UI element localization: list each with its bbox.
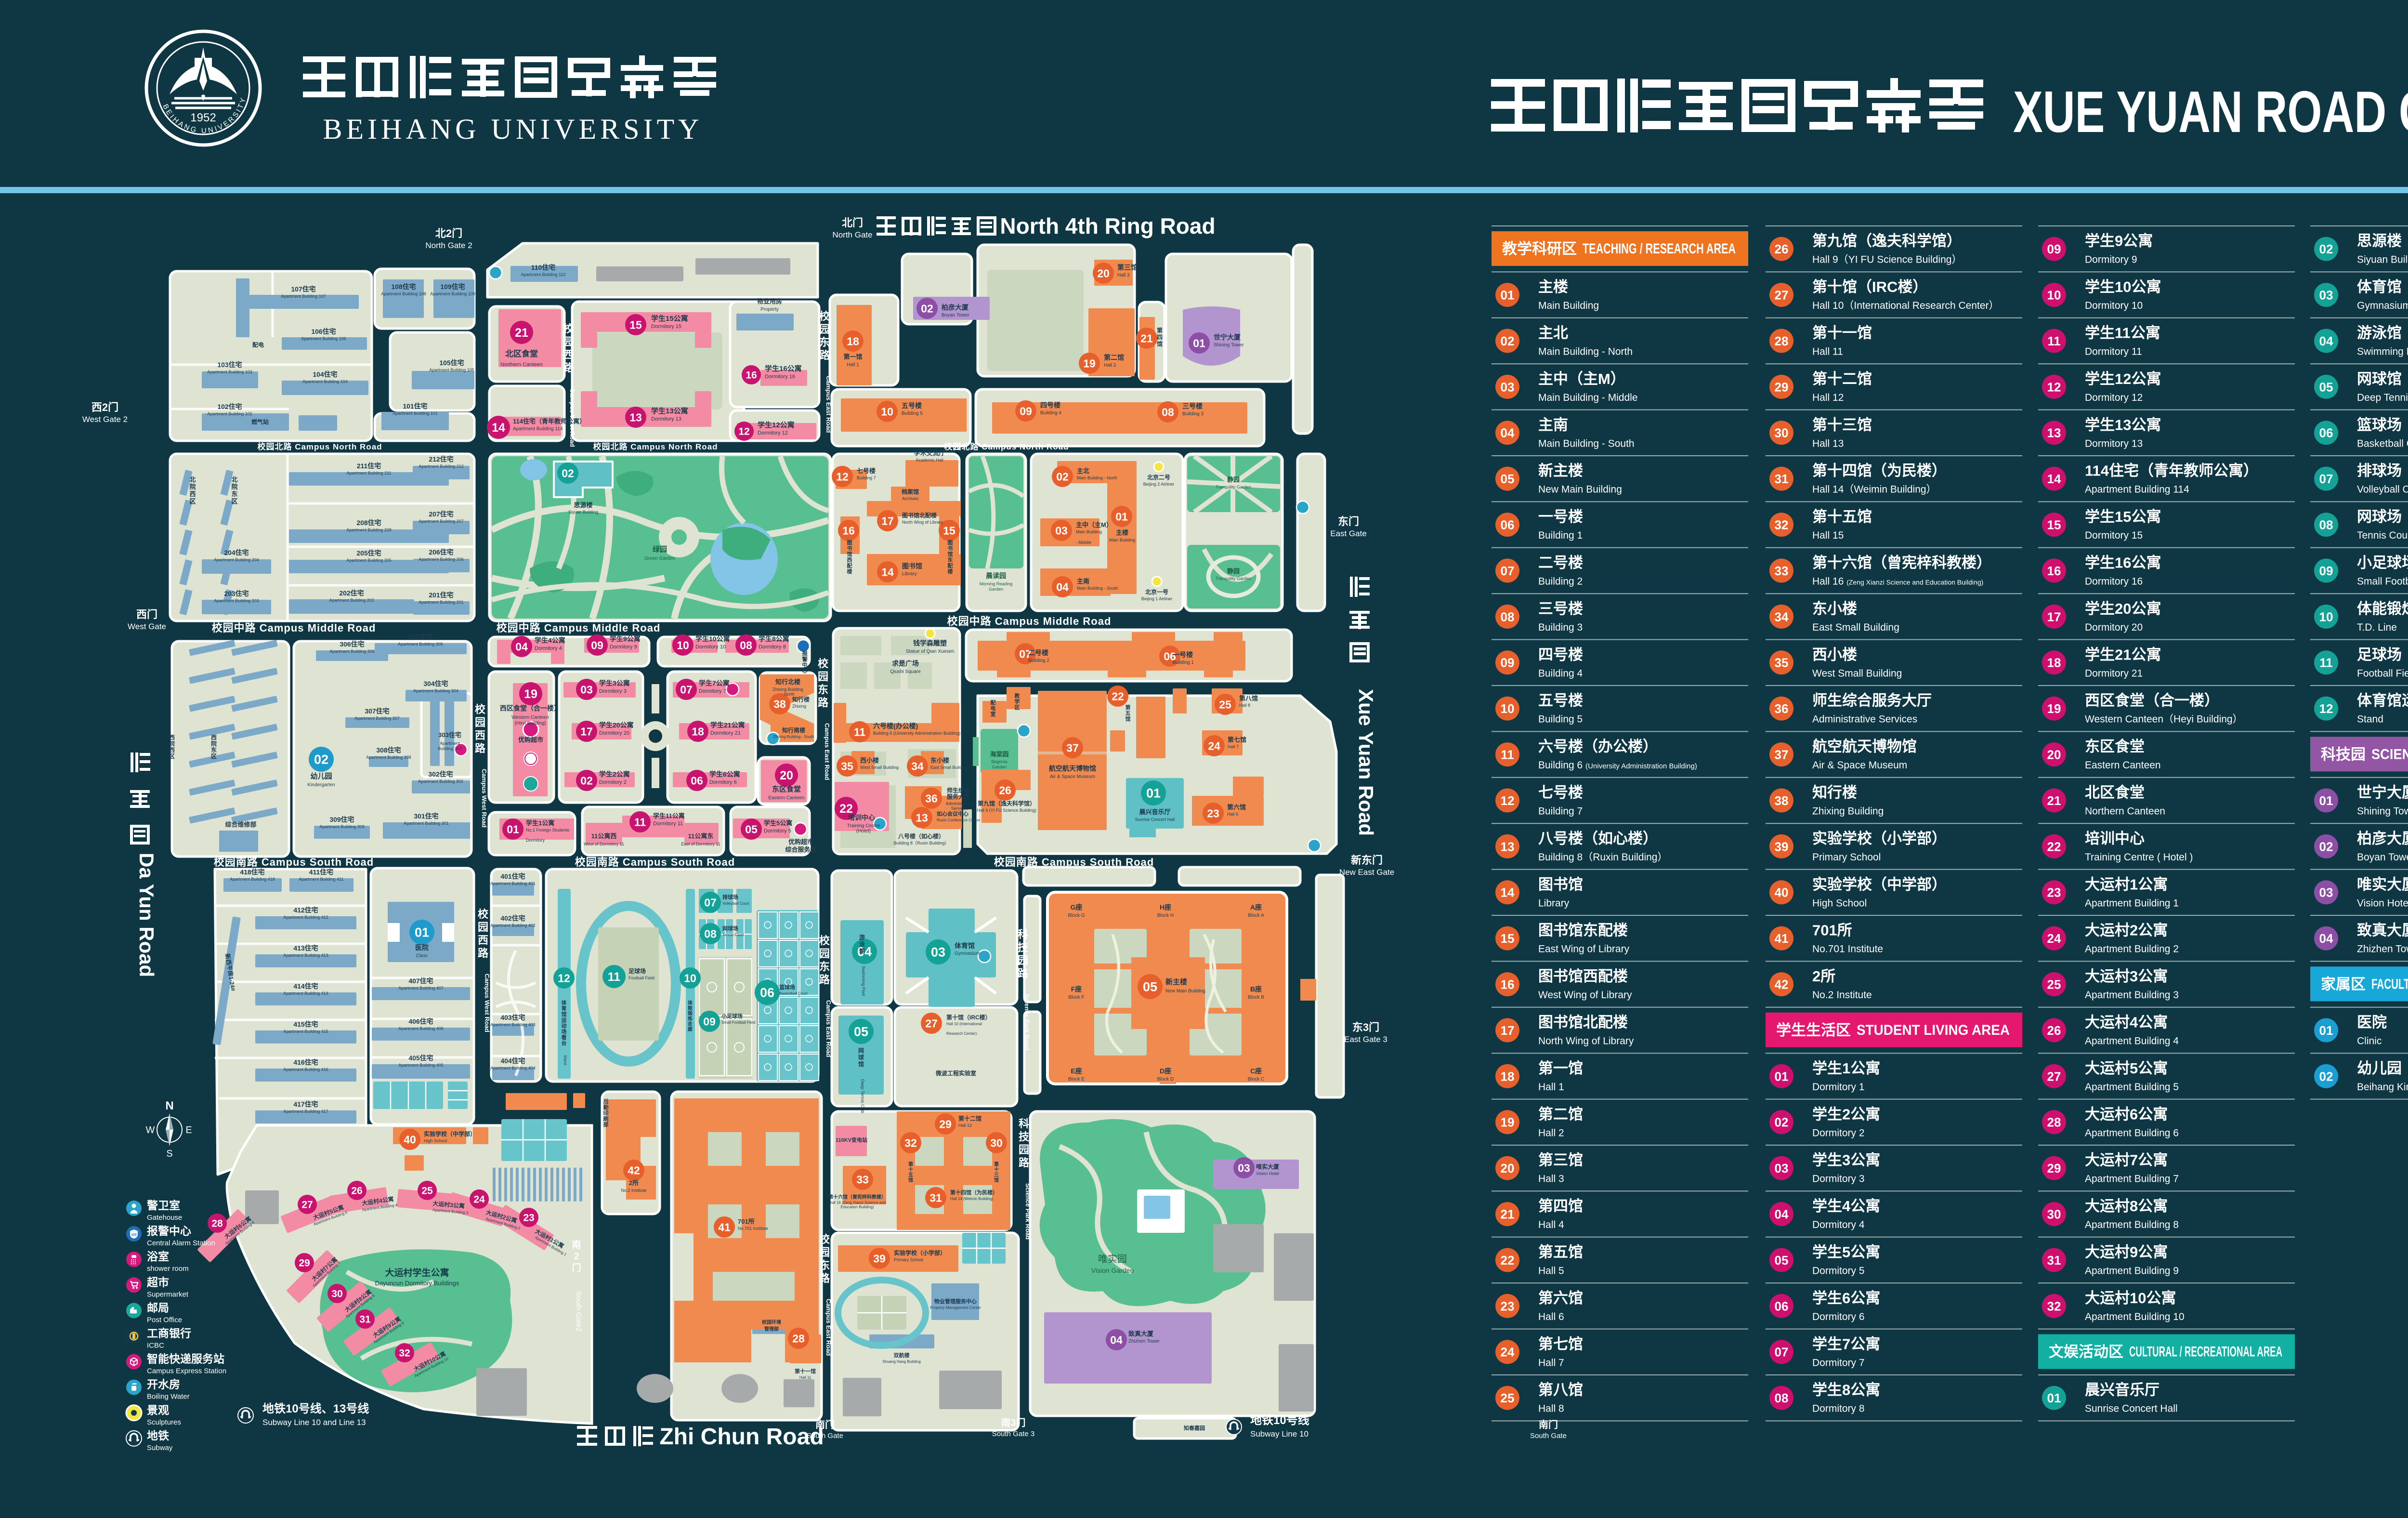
svg-text:西小楼: 西小楼	[860, 757, 879, 764]
svg-text:Xue Yuan Road: Xue Yuan Road	[1355, 689, 1377, 836]
svg-text:Apartment Building 306: Apartment Building 306	[329, 649, 375, 654]
svg-text:ICBC: ICBC	[147, 1342, 164, 1350]
svg-text:36: 36	[925, 792, 938, 805]
svg-text:Main Building - North: Main Building - North	[1538, 346, 1633, 357]
svg-text:大运村3公寓: 大运村3公寓	[2085, 968, 2168, 985]
svg-text:第十二馆: 第十二馆	[1812, 370, 1872, 387]
svg-text:Apartment Building 405: Apartment Building 405	[398, 1063, 444, 1068]
svg-text:Hall 5: Hall 5	[1538, 1266, 1564, 1277]
svg-text:02: 02	[314, 752, 328, 767]
svg-text:学生20公寓: 学生20公寓	[2085, 600, 2161, 617]
svg-text:大运村7公寓: 大运村7公寓	[2085, 1152, 2168, 1169]
svg-text:物业管理服务中心: 物业管理服务中心	[934, 1298, 977, 1305]
svg-text:413住宅: 413住宅	[293, 944, 318, 952]
svg-text:11: 11	[854, 726, 866, 738]
svg-text:第一馆: 第一馆	[843, 353, 862, 360]
svg-text:航空航天博物馆: 航空航天博物馆	[1812, 738, 1917, 755]
svg-text:Apartment Building 1: Apartment Building 1	[2085, 898, 2179, 909]
svg-text:配: 配	[847, 562, 852, 569]
svg-text:Apartment Building 201: Apartment Building 201	[419, 600, 464, 605]
svg-text:档案馆: 档案馆	[902, 488, 919, 495]
svg-text:Apartment Building 114: Apartment Building 114	[513, 426, 563, 432]
svg-text:14: 14	[492, 421, 505, 435]
svg-text:West Small Building: West Small Building	[1812, 668, 1902, 679]
svg-text:馆: 馆	[908, 1177, 913, 1183]
svg-text:Post Office: Post Office	[147, 1316, 182, 1324]
svg-text:东3门: 东3门	[1352, 1021, 1379, 1033]
svg-text:15: 15	[629, 318, 642, 331]
svg-text:E: E	[185, 1125, 192, 1135]
svg-text:09: 09	[703, 1015, 716, 1028]
svg-text:网球馆: 网球馆	[2357, 370, 2402, 387]
svg-text:07: 07	[1501, 564, 1515, 578]
svg-text:学生生活区: 学生生活区	[1776, 1022, 1851, 1039]
svg-text:Building 5: Building 5	[902, 411, 923, 416]
svg-text:Dormitory 4: Dormitory 4	[535, 646, 562, 651]
svg-text:海棠园: 海棠园	[990, 751, 1008, 758]
svg-text:22: 22	[2047, 839, 2061, 854]
svg-text:书: 书	[948, 545, 953, 552]
svg-text:配: 配	[991, 699, 996, 706]
svg-text:08: 08	[1775, 1391, 1789, 1405]
svg-text:南3门: 南3门	[1001, 1417, 1025, 1428]
svg-text:北: 北	[189, 476, 196, 483]
svg-text:Apartment Building 413: Apartment Building 413	[283, 953, 328, 958]
svg-text:2: 2	[574, 1252, 579, 1262]
svg-text:地铁10号线、13号线: 地铁10号线、13号线	[262, 1402, 369, 1415]
svg-text:Northern Canteen: Northern Canteen	[2085, 806, 2165, 817]
svg-text:Gymnasium: Gymnasium	[2357, 300, 2408, 311]
svg-text:Da Yun Road: Da Yun Road	[135, 853, 158, 977]
svg-text:Dormitory 8: Dormitory 8	[759, 644, 786, 650]
svg-text:2所: 2所	[629, 1179, 639, 1187]
svg-text:体育馆: 体育馆	[955, 942, 975, 950]
svg-text:Hall 2: Hall 2	[1104, 363, 1116, 368]
svg-text:Campus Express Station: Campus Express Station	[147, 1367, 226, 1375]
svg-text:09: 09	[591, 639, 603, 651]
svg-text:Sunrise Concert Hall: Sunrise Concert Hall	[1135, 817, 1175, 822]
svg-text:致真大厦: 致真大厦	[1128, 1330, 1154, 1337]
svg-text:24: 24	[2047, 931, 2061, 946]
svg-text:大运村5公寓: 大运村5公寓	[2085, 1060, 2168, 1077]
svg-text:103住宅: 103住宅	[217, 361, 242, 369]
svg-text:Apartment Building 4: Apartment Building 4	[2085, 1036, 2179, 1047]
svg-text:16: 16	[2047, 564, 2061, 578]
svg-text:新主楼: 新主楼	[1538, 462, 1583, 479]
svg-text:Vision Garden: Vision Garden	[1091, 1267, 1134, 1274]
svg-text:学生2公寓: 学生2公寓	[1812, 1106, 1880, 1122]
svg-text:Building 4: Building 4	[1040, 410, 1061, 416]
svg-text:Apartment Building 6: Apartment Building 6	[2085, 1127, 2179, 1138]
svg-text:三号楼: 三号楼	[1182, 402, 1203, 410]
svg-text:211住宅: 211住宅	[357, 462, 381, 470]
svg-text:第四馆: 第四馆	[1538, 1198, 1583, 1214]
svg-text:Building 8（Ruxin Building）: Building 8（Ruxin Building）	[893, 841, 949, 845]
svg-text:202住宅: 202住宅	[339, 589, 364, 597]
svg-text:38: 38	[773, 698, 786, 710]
svg-text:08: 08	[1501, 609, 1515, 624]
svg-text:校: 校	[819, 935, 830, 947]
svg-text:Eastern Canteen: Eastern Canteen	[768, 795, 804, 801]
svg-text:11: 11	[2047, 334, 2061, 348]
svg-text:一号楼: 一号楼	[1173, 651, 1193, 659]
svg-text:31: 31	[929, 1191, 942, 1204]
svg-text:Apartment Building 416: Apartment Building 416	[283, 1067, 328, 1072]
svg-text:新主楼: 新主楼	[1165, 977, 1187, 986]
svg-text:教学科研区: 教学科研区	[1502, 240, 1577, 257]
svg-text:03: 03	[1238, 1162, 1250, 1174]
svg-text:13: 13	[916, 811, 928, 824]
svg-text:能: 能	[688, 1005, 693, 1011]
svg-text:路: 路	[475, 742, 486, 754]
svg-text:Block D: Block D	[1157, 1077, 1174, 1082]
svg-text:23: 23	[2047, 885, 2061, 900]
svg-text:37: 37	[1775, 747, 1789, 762]
svg-text:403住宅: 403住宅	[500, 1014, 525, 1021]
svg-text:Apartment Building 208: Apartment Building 208	[346, 528, 392, 532]
svg-text:四号楼: 四号楼	[1040, 401, 1060, 409]
svg-text:104住宅: 104住宅	[313, 370, 337, 378]
svg-text:Main Building: Main Building	[1076, 529, 1102, 534]
svg-text:Building 8（Ruxin Building）: Building 8（Ruxin Building）	[1538, 852, 1667, 863]
svg-text:13: 13	[1501, 839, 1515, 854]
svg-text:知行楼: 知行楼	[792, 696, 810, 703]
svg-text:世宁大厦: 世宁大厦	[1214, 333, 1241, 341]
svg-text:园: 园	[818, 671, 828, 683]
svg-text:馆: 馆	[562, 1011, 567, 1017]
svg-text:静园: 静园	[1227, 476, 1240, 483]
svg-text:南门: 南门	[1539, 1419, 1558, 1430]
svg-text:第十五馆: 第十五馆	[1812, 508, 1872, 525]
svg-text:Statue of Qian Xuesen: Statue of Qian Xuesen	[906, 649, 955, 654]
svg-text:师生综合服务大厅: 师生综合服务大厅	[1812, 692, 1932, 709]
svg-text:育: 育	[562, 1005, 567, 1012]
svg-text:Apartment Building 404: Apartment Building 404	[490, 1066, 536, 1070]
svg-text:25: 25	[421, 1186, 433, 1197]
svg-text:Small Football Field: Small Football Field	[721, 1020, 755, 1025]
svg-text:05: 05	[745, 823, 758, 835]
svg-text:32: 32	[2047, 1299, 2061, 1313]
svg-text:浴室: 浴室	[147, 1250, 169, 1263]
svg-text:排球场: 排球场	[722, 894, 738, 900]
svg-text:114住宅（青年教师公寓）: 114住宅（青年教师公寓）	[513, 418, 586, 425]
svg-text:第十一馆: 第十一馆	[1812, 325, 1872, 342]
svg-text:学生12公寓: 学生12公寓	[758, 421, 795, 429]
svg-text:园: 园	[563, 336, 574, 348]
svg-text:双航楼: 双航楼	[894, 1352, 910, 1359]
svg-text:Apartment Building 202: Apartment Building 202	[329, 598, 374, 603]
svg-text:Beijing 2 Airliner: Beijing 2 Airliner	[1143, 482, 1175, 487]
svg-text:701所: 701所	[1812, 922, 1852, 939]
svg-text:物业用房: 物业用房	[757, 298, 782, 305]
svg-text:109住宅: 109住宅	[440, 283, 465, 290]
svg-text:Dormitory 7: Dormitory 7	[699, 688, 726, 694]
svg-text:Apartment Building 203: Apartment Building 203	[214, 598, 259, 603]
svg-text:- Middle: - Middle	[1076, 540, 1091, 545]
svg-text:求是广场: 求是广场	[892, 660, 919, 667]
svg-text:馆: 馆	[1125, 715, 1131, 722]
svg-text:第二馆: 第二馆	[1104, 354, 1124, 361]
svg-text:06: 06	[691, 774, 703, 787]
svg-text:院: 院	[211, 740, 217, 747]
svg-text:部: 部	[603, 1121, 609, 1128]
svg-text:Apartment Building 106: Apartment Building 106	[301, 336, 346, 341]
svg-text:Archives: Archives	[902, 496, 919, 501]
svg-text:06: 06	[2319, 426, 2333, 440]
svg-text:实验学校（小学部）: 实验学校（小学部）	[894, 1249, 946, 1256]
svg-text:Apartment Building 301: Apartment Building 301	[404, 821, 449, 826]
svg-text:东: 东	[211, 746, 217, 753]
svg-text:07: 07	[704, 896, 717, 909]
svg-text:网球场: 网球场	[722, 925, 738, 932]
svg-text:Deep Tennis Club: Deep Tennis Club	[860, 1079, 865, 1113]
svg-text:15: 15	[943, 524, 955, 537]
svg-text:学生3公寓: 学生3公寓	[1812, 1152, 1880, 1169]
svg-text:西: 西	[169, 734, 175, 741]
svg-text:108住宅: 108住宅	[391, 283, 416, 290]
svg-text:地铁: 地铁	[147, 1429, 169, 1442]
svg-text:Campus West Road: Campus West Road	[484, 974, 491, 1032]
svg-text:体育馆运动场看台: 体育馆运动场看台	[2357, 692, 2408, 709]
svg-text:11公寓西: 11公寓西	[591, 832, 617, 840]
svg-text:701所: 701所	[738, 1218, 755, 1225]
svg-text:03: 03	[931, 945, 945, 960]
svg-text:校: 校	[818, 658, 829, 670]
svg-text:Main Building - North: Main Building - North	[1077, 475, 1117, 480]
svg-text:FACULTY / STAFF RESIDENTIAL AR: FACULTY / STAFF RESIDENTIAL AREA	[2371, 976, 2408, 992]
svg-text:Gymnasium: Gymnasium	[955, 951, 980, 956]
svg-text:Dormitory 16: Dormitory 16	[2085, 576, 2143, 587]
svg-text:Hall 11: Hall 11	[1812, 346, 1843, 357]
svg-text:校: 校	[819, 310, 830, 322]
svg-text:11: 11	[2319, 656, 2333, 670]
svg-text:309住宅: 309住宅	[329, 816, 354, 823]
svg-text:19: 19	[2047, 701, 2061, 716]
svg-text:Building 6 (University Adminis: Building 6 (University Administration Bu…	[873, 731, 960, 736]
svg-text:22: 22	[1112, 690, 1124, 702]
svg-text:East Small Building: East Small Building	[1812, 622, 1899, 633]
svg-text:主北: 主北	[1077, 467, 1089, 475]
svg-text:教: 教	[1014, 692, 1021, 699]
svg-text:Hall 1: Hall 1	[1538, 1082, 1564, 1093]
svg-text:新东门: 新东门	[1351, 854, 1383, 866]
svg-text:大运村10公寓: 大运村10公寓	[2085, 1290, 2176, 1307]
svg-text:主中（主M）: 主中（主M）	[1538, 370, 1625, 387]
svg-text:Apartment: Apartment	[440, 741, 460, 746]
svg-text:Block F: Block F	[1068, 995, 1084, 1000]
svg-text:Morning Reading: Morning Reading	[980, 581, 1013, 586]
svg-text:知春嘉园: 知春嘉园	[1183, 1425, 1205, 1431]
svg-text:Apartment Building 10: Apartment Building 10	[2085, 1311, 2185, 1322]
svg-text:42: 42	[1775, 977, 1789, 991]
svg-text:第十四馆（为民楼）: 第十四馆（为民楼）	[950, 1189, 998, 1196]
svg-text:七号楼: 七号楼	[1538, 784, 1583, 801]
svg-text:39: 39	[1775, 839, 1789, 854]
svg-text:Building 3: Building 3	[1538, 622, 1583, 633]
svg-text:417住宅: 417住宅	[293, 1100, 318, 1108]
svg-text:Gatehouse: Gatehouse	[147, 1214, 182, 1222]
svg-text:Dormitory 12: Dormitory 12	[2085, 392, 2143, 403]
svg-text:第十四馆（为民楼）: 第十四馆（为民楼）	[1812, 462, 1947, 479]
svg-text:26: 26	[1775, 242, 1789, 256]
svg-text:二号楼: 二号楼	[1538, 554, 1583, 571]
svg-text:Dormitory 13: Dormitory 13	[651, 416, 681, 422]
svg-text:12: 12	[1501, 793, 1515, 808]
svg-text:西门: 西门	[136, 608, 157, 620]
svg-text:学生1公寓: 学生1公寓	[526, 819, 554, 827]
svg-text:Apartment Building 305: Apartment Building 305	[398, 642, 443, 647]
svg-text:Block G: Block G	[1068, 913, 1085, 918]
svg-text:Dormitory 20: Dormitory 20	[2085, 622, 2143, 633]
svg-text:Apartment Building 9: Apartment Building 9	[2085, 1266, 2179, 1277]
svg-text:Property: Property	[760, 307, 779, 312]
svg-text:20: 20	[780, 769, 793, 782]
svg-text:West Gate: West Gate	[128, 622, 166, 631]
svg-text:26: 26	[999, 784, 1011, 796]
svg-text:06: 06	[760, 986, 774, 1000]
svg-text:第七馆: 第七馆	[1538, 1335, 1583, 1352]
svg-text:STUDENT LIVING AREA: STUDENT LIVING AREA	[1857, 1022, 2010, 1038]
svg-text:26: 26	[2047, 1023, 2061, 1038]
svg-text:东区食堂: 东区食堂	[2085, 738, 2145, 755]
svg-text:04: 04	[1056, 581, 1069, 593]
svg-text:第一馆: 第一馆	[1538, 1060, 1583, 1077]
svg-text:Hall 4: Hall 4	[1538, 1219, 1564, 1230]
svg-text:微波工程实验室: 微波工程实验室	[935, 1069, 976, 1077]
svg-text:Apartment Building 414: Apartment Building 414	[283, 991, 328, 996]
svg-text:东门: 东门	[1338, 515, 1359, 528]
svg-text:第: 第	[994, 1161, 999, 1167]
svg-text:28: 28	[792, 1332, 805, 1345]
svg-text:第十六馆（曾宪梓科教楼）: 第十六馆（曾宪梓科教楼）	[1812, 554, 1991, 571]
svg-text:篮球场: 篮球场	[779, 984, 795, 990]
svg-text:Apartment Building 302: Apartment Building 302	[418, 779, 463, 784]
svg-text:北门: 北门	[842, 217, 863, 229]
svg-text:体: 体	[562, 999, 567, 1006]
svg-text:102住宅: 102住宅	[217, 403, 242, 410]
svg-text:30: 30	[990, 1136, 1003, 1149]
svg-text:21: 21	[515, 326, 528, 340]
svg-text:第五馆: 第五馆	[1538, 1244, 1583, 1261]
svg-text:大运村4公寓: 大运村4公寓	[2085, 1014, 2168, 1031]
svg-text:中: 中	[802, 661, 808, 668]
svg-text:29: 29	[299, 1258, 310, 1269]
svg-text:No.701 Institute: No.701 Institute	[738, 1226, 768, 1231]
svg-text:大运村6公寓: 大运村6公寓	[2085, 1106, 2168, 1122]
svg-text:六号楼（办公楼）: 六号楼（办公楼）	[1538, 738, 1658, 755]
svg-text:图书馆北配楼: 图书馆北配楼	[902, 512, 937, 519]
svg-text:32: 32	[399, 1348, 410, 1359]
svg-text:学生9公寓: 学生9公寓	[610, 635, 641, 643]
svg-text:刷: 刷	[603, 1116, 609, 1122]
svg-text:Apartment Building 401: Apartment Building 401	[490, 881, 536, 886]
svg-text:North Gate: North Gate	[832, 230, 872, 239]
svg-text:Hall 9 (YI FU Science Building: Hall 9 (YI FU Science Building)	[977, 808, 1036, 813]
svg-text:12: 12	[738, 426, 749, 437]
svg-text:Building 7: Building 7	[1538, 806, 1583, 817]
svg-text:404住宅: 404住宅	[500, 1057, 525, 1065]
svg-text:第六馆: 第六馆	[1227, 804, 1246, 811]
svg-text:401住宅: 401住宅	[500, 872, 525, 880]
svg-text:08: 08	[740, 639, 752, 651]
svg-text:Zhizhen Tower: Zhizhen Tower	[1128, 1339, 1160, 1344]
svg-text:415住宅: 415住宅	[293, 1020, 318, 1028]
svg-text:馆: 馆	[859, 947, 865, 954]
svg-text:Apartment Building 304: Apartment Building 304	[413, 688, 458, 693]
svg-text:Science Park Road: Science Park Road	[1024, 1183, 1032, 1240]
svg-text:01: 01	[1115, 510, 1128, 523]
svg-text:学术交流厅: 学术交流厅	[914, 449, 945, 457]
svg-text:10: 10	[2319, 609, 2333, 624]
svg-text:Hall 10（International Research: Hall 10（International Research Center）	[1812, 300, 1999, 311]
svg-text:图书馆: 图书馆	[902, 562, 922, 570]
svg-text:泳: 泳	[859, 940, 865, 948]
svg-text:Dormitory 6: Dormitory 6	[709, 779, 737, 785]
svg-text:第十六馆（曾宪梓科教楼）: 第十六馆（曾宪梓科教楼）	[828, 1194, 886, 1200]
svg-text:Apartment Building 114: Apartment Building 114	[2085, 484, 2189, 495]
svg-text:东: 东	[948, 556, 953, 563]
svg-text:301住宅: 301住宅	[414, 812, 438, 820]
svg-text:大运村9公寓: 大运村9公寓	[2085, 1244, 2168, 1261]
svg-text:Apartment Building 418: Apartment Building 418	[230, 877, 275, 882]
svg-text:体能锻炼走廊: 体能锻炼走廊	[2357, 600, 2408, 617]
svg-text:第十三馆: 第十三馆	[1812, 416, 1872, 433]
svg-text:东小楼: 东小楼	[1812, 600, 1857, 617]
svg-text:Hall 12: Hall 12	[1812, 392, 1844, 403]
svg-text:04: 04	[2319, 931, 2333, 946]
svg-text:Hall 9（YI FU Science Building）: Hall 9（YI FU Science Building）	[1812, 254, 1962, 265]
svg-text:Small Football Field: Small Football Field	[2357, 576, 2408, 587]
svg-text:12: 12	[2319, 701, 2333, 716]
svg-text:台: 台	[562, 1040, 567, 1046]
svg-text:14: 14	[881, 566, 894, 578]
svg-text:科: 科	[1018, 928, 1028, 940]
svg-text:致真大厦: 致真大厦	[2357, 922, 2408, 939]
svg-text:24: 24	[1208, 739, 1220, 752]
svg-text:学生11公寓: 学生11公寓	[653, 812, 685, 819]
svg-text:Shuang Hang Building: Shuang Hang Building	[882, 1360, 921, 1364]
svg-text:燃气站: 燃气站	[251, 418, 269, 425]
svg-text:Apartment Building 105: Apartment Building 105	[429, 368, 474, 372]
svg-text:智能快递服务站: 智能快递服务站	[147, 1353, 224, 1365]
svg-text:优购超市: 优购超市	[518, 736, 543, 743]
svg-text:技: 技	[1019, 1131, 1030, 1143]
svg-text:思源楼: 思源楼	[2357, 233, 2402, 250]
svg-text:14: 14	[1501, 885, 1515, 900]
svg-text:South Gate: South Gate	[807, 1432, 843, 1440]
svg-text:知行北楼: 知行北楼	[775, 678, 800, 686]
svg-text:20: 20	[1097, 267, 1110, 279]
svg-text:图书馆东配楼: 图书馆东配楼	[1538, 922, 1628, 939]
svg-text:院: 院	[169, 740, 175, 747]
svg-text:校园中路 Campus Middle Road: 校园中路 Campus Middle Road	[947, 615, 1112, 627]
svg-text:Apartment Building 417: Apartment Building 417	[283, 1109, 328, 1114]
svg-text:大运村2公寓: 大运村2公寓	[2085, 922, 2168, 939]
svg-text:学生16公寓: 学生16公寓	[765, 364, 802, 373]
svg-text:馆: 馆	[994, 1177, 999, 1183]
svg-text:北京一号: 北京一号	[1145, 588, 1168, 595]
svg-text:23: 23	[1207, 807, 1219, 819]
svg-text:Volleyball Court: Volleyball Court	[722, 901, 749, 906]
svg-text:柏彦大厦: 柏彦大厦	[2357, 830, 2408, 847]
svg-text:唯实大厦: 唯实大厦	[2357, 876, 2408, 893]
svg-text:13: 13	[2047, 426, 2061, 440]
svg-text:XUE YUAN ROAD CAMPUS PLAN: XUE YUAN ROAD CAMPUS PLAN	[2013, 79, 2408, 145]
svg-text:29: 29	[2047, 1161, 2061, 1175]
svg-text:Campus West Road: Campus West Road	[481, 769, 488, 828]
svg-text:晨兴音乐厅: 晨兴音乐厅	[1139, 808, 1170, 816]
svg-text:学生20公寓: 学生20公寓	[599, 721, 634, 729]
